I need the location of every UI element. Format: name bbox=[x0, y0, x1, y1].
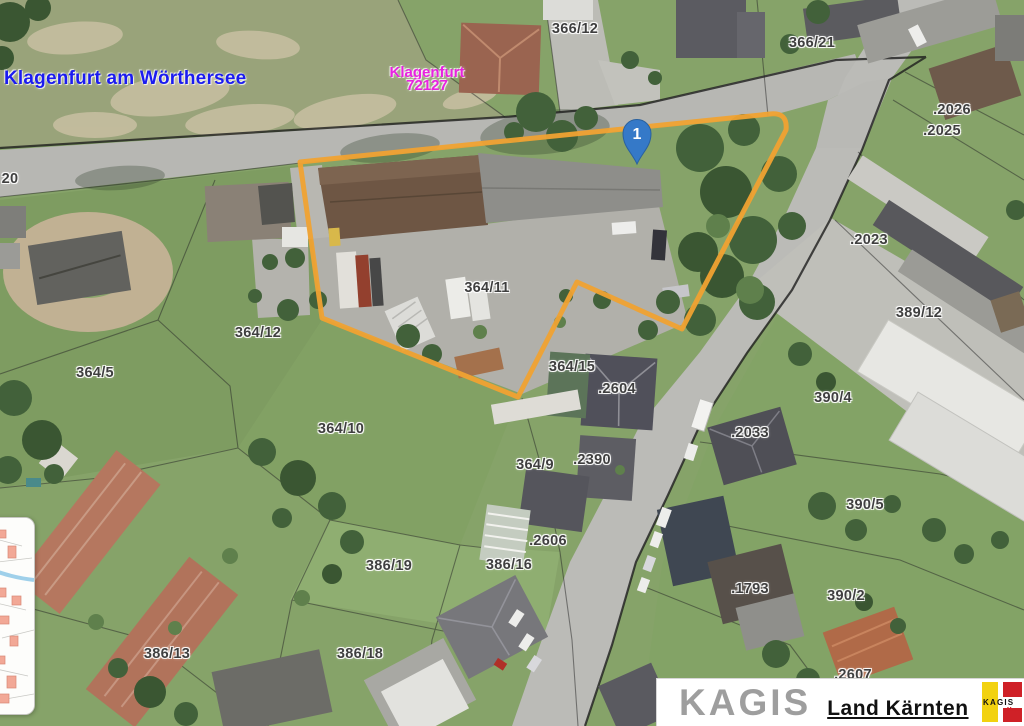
kagis-wordmark: KAGIS bbox=[679, 679, 811, 726]
overview-inset-map bbox=[0, 518, 34, 714]
logo-subtext: Maps bbox=[1007, 707, 1021, 713]
municipality-label: Klagenfurt am Wörthersee bbox=[4, 68, 246, 90]
aerial-map-canvas[interactable]: 1 bbox=[0, 0, 1024, 726]
logo-text: KAGIS bbox=[983, 698, 1022, 707]
map-viewport[interactable]: 1 366/12366/21.2026.2025.2023389/12390/4… bbox=[0, 0, 1024, 726]
kagis-logo: KAGIS Maps bbox=[979, 682, 1022, 722]
overview-inset bbox=[0, 517, 35, 715]
footer-bar: KAGIS Land Kärnten KAGIS Maps bbox=[656, 678, 1024, 726]
org-label: Land Kärnten bbox=[827, 697, 968, 721]
marker-number: 1 bbox=[633, 126, 642, 143]
cadastral-area-label: Klagenfurt 72127 bbox=[390, 66, 465, 92]
